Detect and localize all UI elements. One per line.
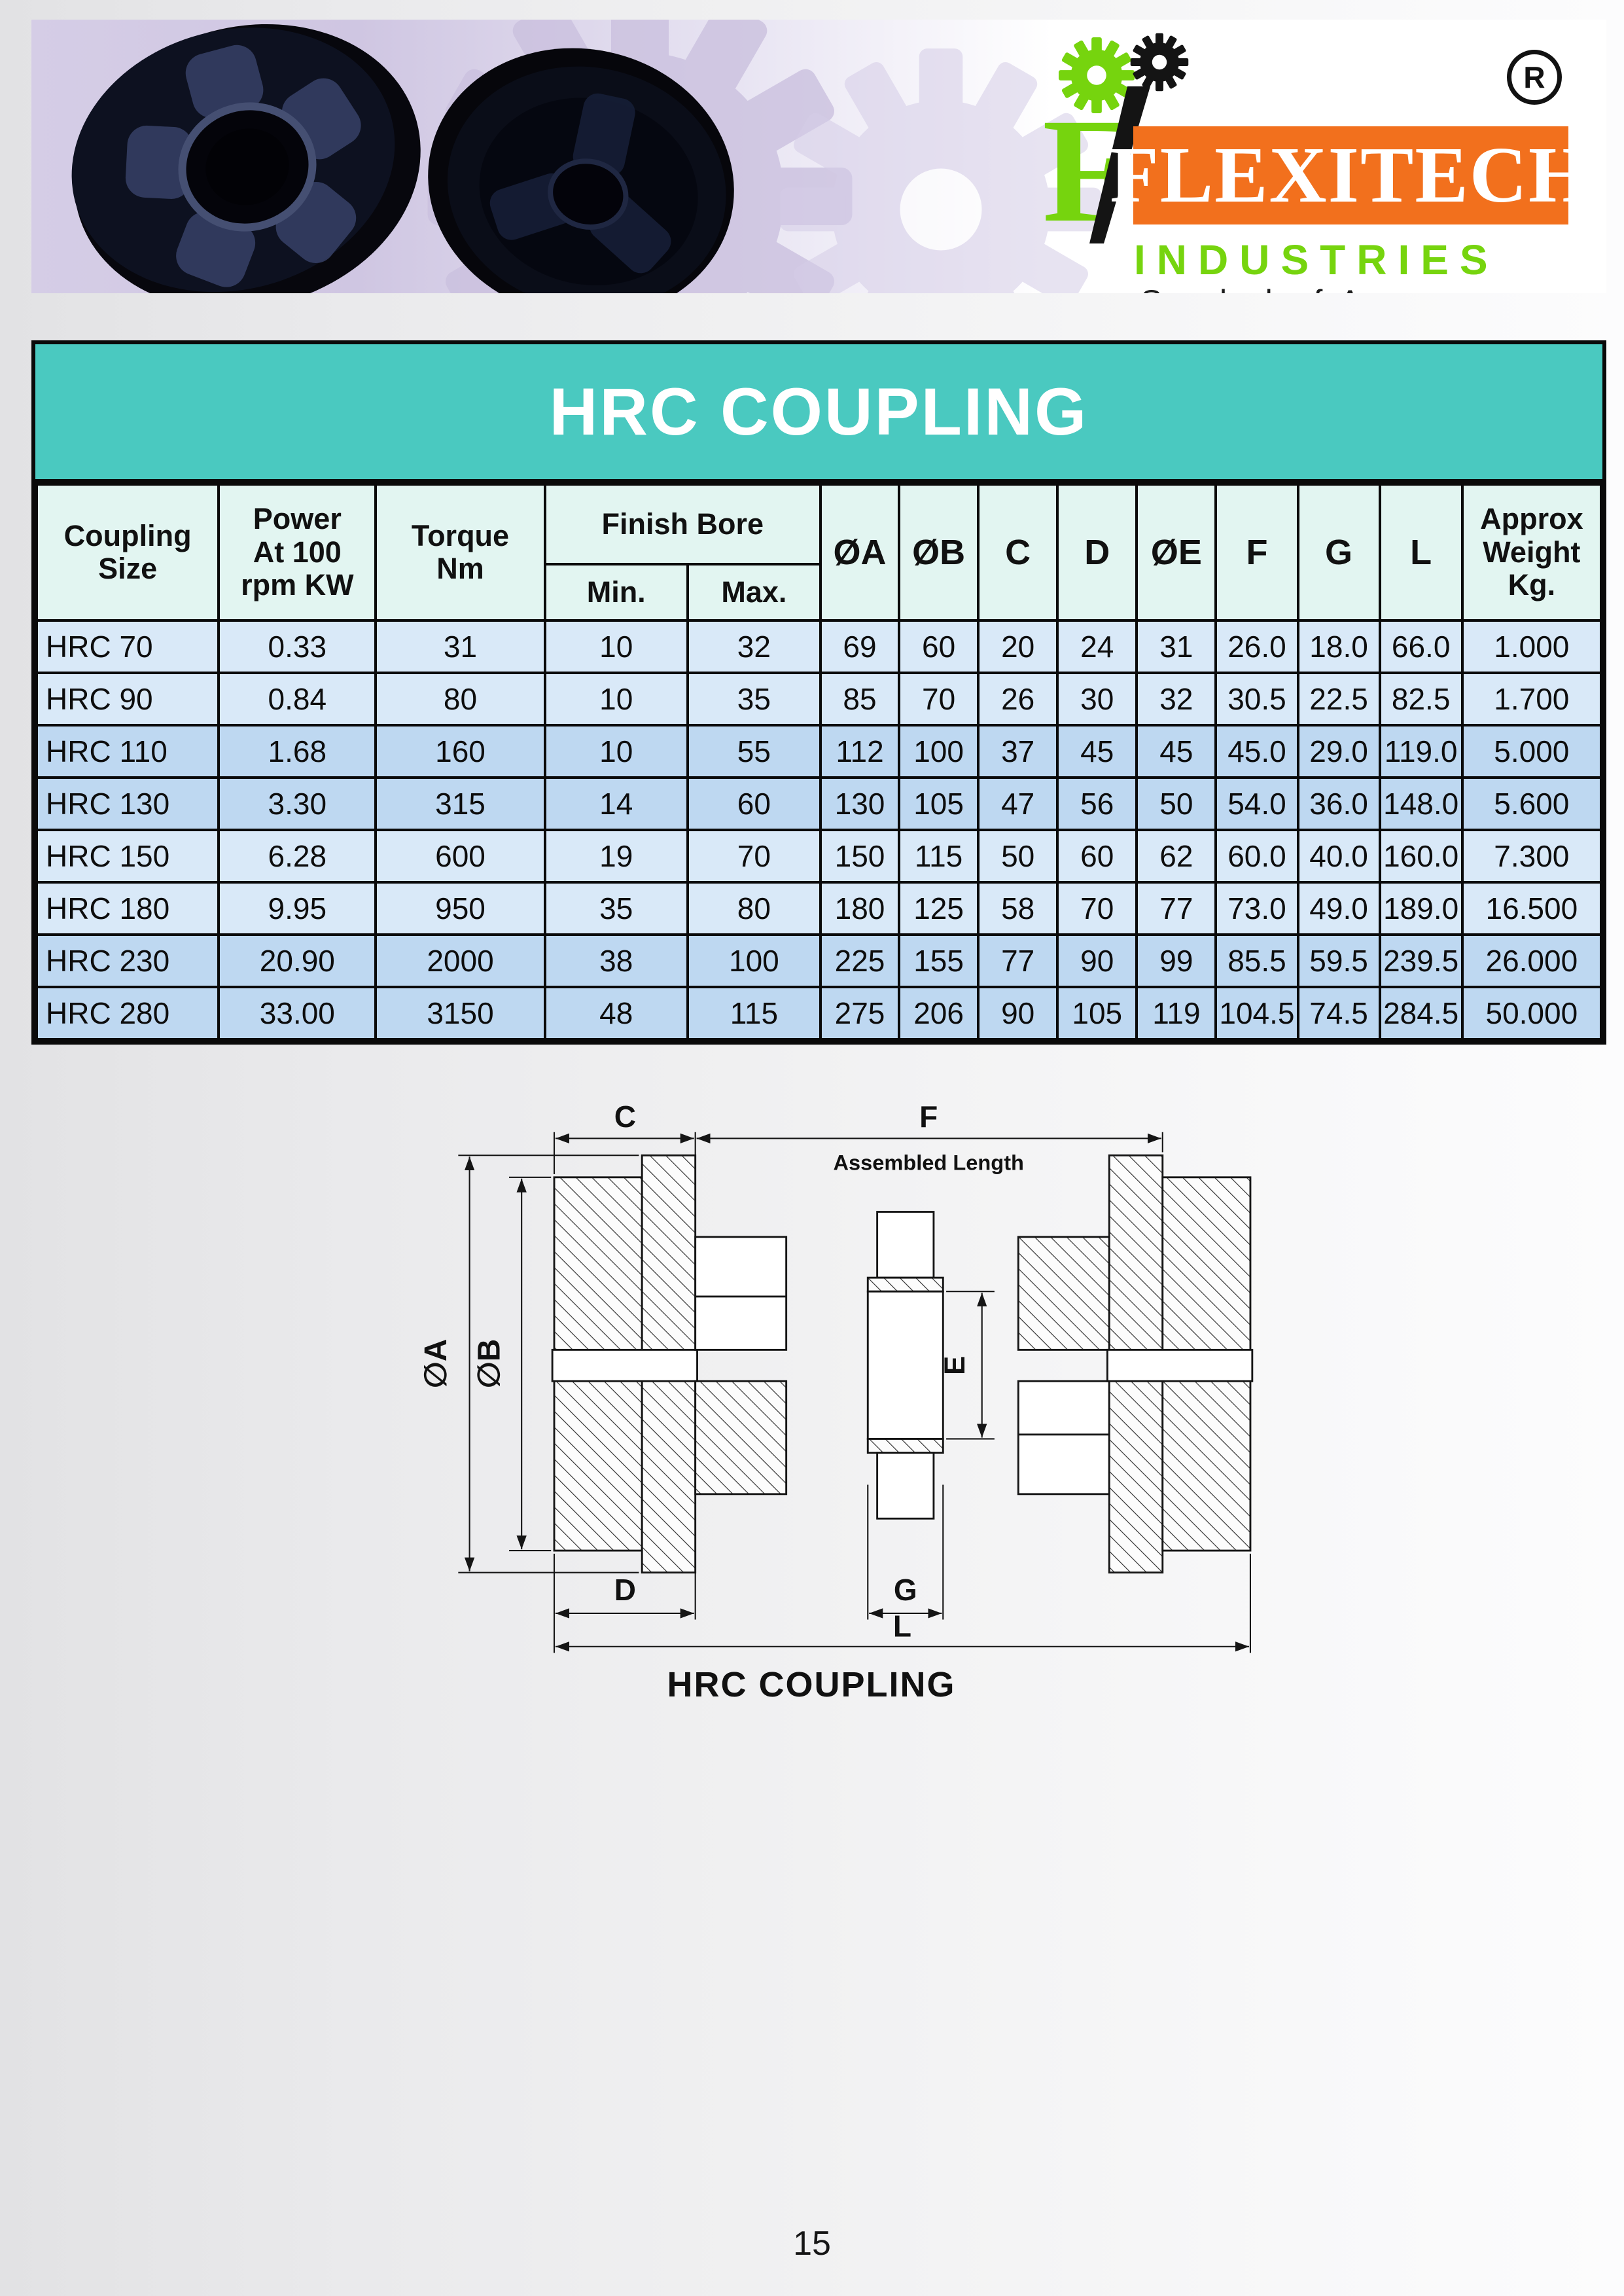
value-cell: 189.0	[1380, 882, 1462, 935]
spec-table-section: HRC COUPLING Coupling Size Power At 100 …	[31, 340, 1606, 1045]
value-cell: 50.000	[1462, 987, 1601, 1039]
coupling-size-cell: HRC 280	[37, 987, 219, 1039]
value-cell: 90	[1057, 935, 1137, 987]
spec-table: Coupling Size Power At 100 rpm KW Torque…	[35, 483, 1602, 1041]
coupling-photo-left	[42, 20, 453, 293]
value-cell: 239.5	[1380, 935, 1462, 987]
brand-division: INDUSTRIES	[1134, 236, 1572, 284]
table-row: HRC 28033.0031504811527520690105119104.5…	[37, 987, 1601, 1039]
coupling-size-cell: HRC 70	[37, 620, 219, 673]
value-cell: 10	[545, 620, 688, 673]
value-cell: 50	[1137, 778, 1216, 830]
value-cell: 119.0	[1380, 725, 1462, 778]
value-cell: 36.0	[1298, 778, 1380, 830]
value-cell: 45	[1057, 725, 1137, 778]
value-cell: 47	[978, 778, 1057, 830]
table-row: HRC 1809.95950358018012558707773.049.018…	[37, 882, 1601, 935]
value-cell: 3150	[376, 987, 544, 1039]
catalog-page: { "brand": { "name": "FLEXITECH", "divis…	[0, 0, 1624, 2296]
value-cell: 77	[978, 935, 1057, 987]
dim-label-e: E	[939, 1356, 971, 1375]
value-cell: 58	[978, 882, 1057, 935]
value-cell: 112	[821, 725, 899, 778]
header-d: D	[1057, 484, 1137, 620]
value-cell: 150	[821, 830, 899, 882]
value-cell: 26.0	[1216, 620, 1297, 673]
value-cell: 0.33	[219, 620, 376, 673]
technical-drawing: C F Assembled Length ∅A ∅B E D G L HRC C…	[353, 1083, 1269, 1705]
value-cell: 160.0	[1380, 830, 1462, 882]
value-cell: 82.5	[1380, 673, 1462, 725]
registered-trademark-icon: R	[1507, 50, 1562, 105]
value-cell: 70	[688, 830, 821, 882]
value-cell: 90	[978, 987, 1057, 1039]
drawing-caption: HRC COUPLING	[353, 1664, 1269, 1705]
header-finish-bore: Finish Bore	[545, 484, 821, 564]
table-row: HRC 700.33311032696020243126.018.066.01.…	[37, 620, 1601, 673]
dim-label-l: L	[893, 1609, 911, 1643]
value-cell: 9.95	[219, 882, 376, 935]
value-cell: 1.700	[1462, 673, 1601, 725]
value-cell: 5.600	[1462, 778, 1601, 830]
header-max: Max.	[688, 564, 821, 620]
value-cell: 950	[376, 882, 544, 935]
header-c: C	[978, 484, 1057, 620]
header-banner: F R FLEXITECH INDUSTRIES Symbol of Accur…	[31, 20, 1606, 293]
value-cell: 115	[688, 987, 821, 1039]
gear-icon-black	[1131, 33, 1189, 92]
value-cell: 115	[899, 830, 978, 882]
drawing-svg: C F Assembled Length ∅A ∅B E D G L	[353, 1083, 1269, 1658]
value-cell: 275	[821, 987, 899, 1039]
value-cell: 62	[1137, 830, 1216, 882]
value-cell: 40.0	[1298, 830, 1380, 882]
value-cell: 119	[1137, 987, 1216, 1039]
header-g: G	[1298, 484, 1380, 620]
header-f: F	[1216, 484, 1297, 620]
value-cell: 148.0	[1380, 778, 1462, 830]
value-cell: 22.5	[1298, 673, 1380, 725]
value-cell: 105	[899, 778, 978, 830]
coupling-photo-right	[403, 20, 760, 293]
dim-label-dia-b: ∅B	[472, 1339, 507, 1389]
value-cell: 66.0	[1380, 620, 1462, 673]
value-cell: 18.0	[1298, 620, 1380, 673]
value-cell: 1.68	[219, 725, 376, 778]
value-cell: 45.0	[1216, 725, 1297, 778]
value-cell: 54.0	[1216, 778, 1297, 830]
value-cell: 69	[821, 620, 899, 673]
dim-label-f: F	[919, 1100, 938, 1134]
value-cell: 49.0	[1298, 882, 1380, 935]
value-cell: 32	[1137, 673, 1216, 725]
value-cell: 77	[1137, 882, 1216, 935]
brand-tagline: Symbol of Accuracy	[1140, 283, 1510, 293]
coupling-size-cell: HRC 150	[37, 830, 219, 882]
value-cell: 19	[545, 830, 688, 882]
value-cell: 104.5	[1216, 987, 1297, 1039]
value-cell: 2000	[376, 935, 544, 987]
value-cell: 14	[545, 778, 688, 830]
value-cell: 26	[978, 673, 1057, 725]
value-cell: 30	[1057, 673, 1137, 725]
value-cell: 20	[978, 620, 1057, 673]
value-cell: 180	[821, 882, 899, 935]
registered-letter: R	[1523, 60, 1545, 95]
value-cell: 33.00	[219, 987, 376, 1039]
value-cell: 29.0	[1298, 725, 1380, 778]
value-cell: 225	[821, 935, 899, 987]
value-cell: 100	[899, 725, 978, 778]
table-row: HRC 900.84801035857026303230.522.582.51.…	[37, 673, 1601, 725]
value-cell: 31	[376, 620, 544, 673]
value-cell: 85	[821, 673, 899, 725]
table-header: Coupling Size Power At 100 rpm KW Torque…	[37, 484, 1601, 620]
coupling-size-cell: HRC 230	[37, 935, 219, 987]
value-cell: 160	[376, 725, 544, 778]
value-cell: 3.30	[219, 778, 376, 830]
value-cell: 38	[545, 935, 688, 987]
page-title: HRC COUPLING	[550, 374, 1089, 450]
value-cell: 6.28	[219, 830, 376, 882]
value-cell: 50	[978, 830, 1057, 882]
value-cell: 105	[1057, 987, 1137, 1039]
value-cell: 10	[545, 673, 688, 725]
value-cell: 80	[688, 882, 821, 935]
header-min: Min.	[545, 564, 688, 620]
value-cell: 315	[376, 778, 544, 830]
header-power: Power At 100 rpm KW	[219, 484, 376, 620]
value-cell: 155	[899, 935, 978, 987]
value-cell: 284.5	[1380, 987, 1462, 1039]
table-body: HRC 700.33311032696020243126.018.066.01.…	[37, 620, 1601, 1039]
dim-label-dia-a: ∅A	[419, 1339, 453, 1389]
value-cell: 37	[978, 725, 1057, 778]
table-row: HRC 23020.9020003810022515577909985.559.…	[37, 935, 1601, 987]
header-l: L	[1380, 484, 1462, 620]
value-cell: 45	[1137, 725, 1216, 778]
header-weight: Approx Weight Kg.	[1462, 484, 1601, 620]
value-cell: 73.0	[1216, 882, 1297, 935]
value-cell: 5.000	[1462, 725, 1601, 778]
value-cell: 60	[688, 778, 821, 830]
value-cell: 55	[688, 725, 821, 778]
table-row: HRC 1101.68160105511210037454545.029.011…	[37, 725, 1601, 778]
header-torque: Torque Nm	[376, 484, 544, 620]
value-cell: 30.5	[1216, 673, 1297, 725]
value-cell: 600	[376, 830, 544, 882]
value-cell: 56	[1057, 778, 1137, 830]
value-cell: 70	[1057, 882, 1137, 935]
value-cell: 20.90	[219, 935, 376, 987]
value-cell: 48	[545, 987, 688, 1039]
value-cell: 0.84	[219, 673, 376, 725]
value-cell: 35	[688, 673, 821, 725]
page-number: 15	[0, 2224, 1624, 2263]
header-dia-e: ØE	[1137, 484, 1216, 620]
value-cell: 80	[376, 673, 544, 725]
dim-label-d: D	[614, 1573, 636, 1607]
value-cell: 99	[1137, 935, 1216, 987]
value-cell: 31	[1137, 620, 1216, 673]
value-cell: 32	[688, 620, 821, 673]
value-cell: 60.0	[1216, 830, 1297, 882]
value-cell: 85.5	[1216, 935, 1297, 987]
value-cell: 125	[899, 882, 978, 935]
value-cell: 1.000	[1462, 620, 1601, 673]
header-dia-a: ØA	[821, 484, 899, 620]
title-banner: HRC COUPLING	[35, 344, 1602, 483]
table-row: HRC 1506.28600197015011550606260.040.016…	[37, 830, 1601, 882]
value-cell: 206	[899, 987, 978, 1039]
header-dia-b: ØB	[899, 484, 978, 620]
value-cell: 59.5	[1298, 935, 1380, 987]
value-cell: 100	[688, 935, 821, 987]
brand-logo: F R FLEXITECH INDUSTRIES Symbol of Accur…	[966, 20, 1595, 293]
table-row: HRC 1303.30315146013010547565054.036.014…	[37, 778, 1601, 830]
header-coupling-size: Coupling Size	[37, 484, 219, 620]
coupling-size-cell: HRC 110	[37, 725, 219, 778]
dim-label-assembled-length: Assembled Length	[834, 1151, 1024, 1174]
value-cell: 74.5	[1298, 987, 1380, 1039]
coupling-size-cell: HRC 130	[37, 778, 219, 830]
value-cell: 60	[1057, 830, 1137, 882]
value-cell: 10	[545, 725, 688, 778]
value-cell: 60	[899, 620, 978, 673]
value-cell: 26.000	[1462, 935, 1601, 987]
product-photo-couplings	[38, 20, 790, 293]
value-cell: 130	[821, 778, 899, 830]
value-cell: 35	[545, 882, 688, 935]
dim-label-g: G	[894, 1573, 917, 1607]
value-cell: 24	[1057, 620, 1137, 673]
value-cell: 16.500	[1462, 882, 1601, 935]
coupling-size-cell: HRC 90	[37, 673, 219, 725]
coupling-size-cell: HRC 180	[37, 882, 219, 935]
dim-label-c: C	[614, 1100, 636, 1134]
value-cell: 70	[899, 673, 978, 725]
brand-name: FLEXITECH	[1133, 126, 1568, 224]
value-cell: 7.300	[1462, 830, 1601, 882]
